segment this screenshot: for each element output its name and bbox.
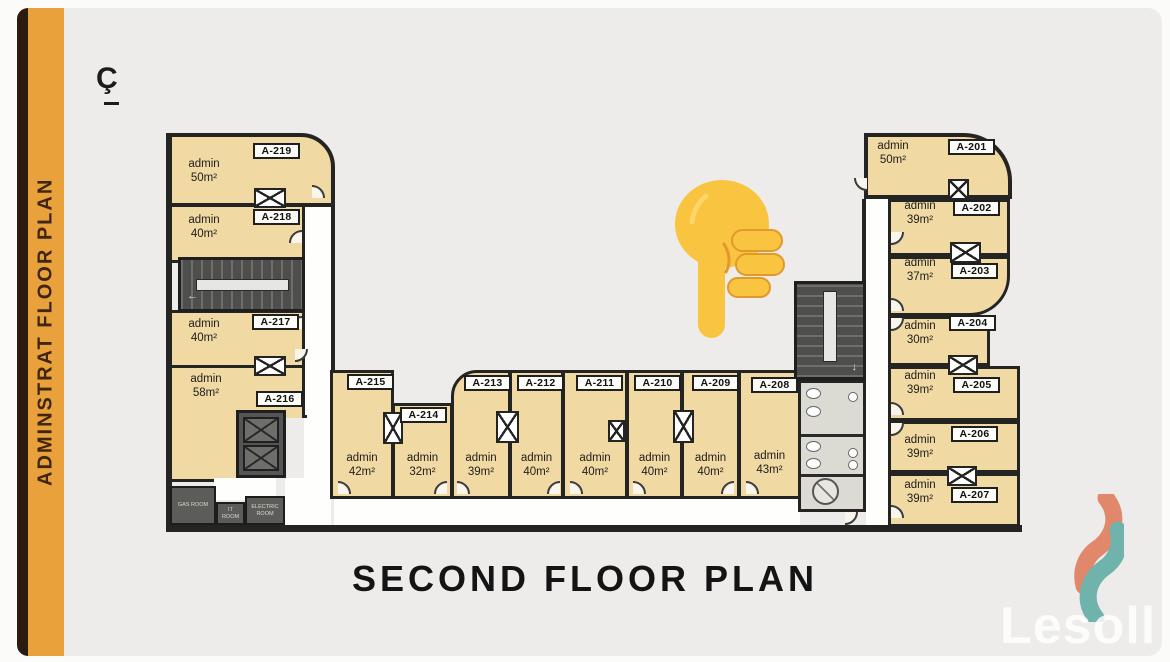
utility-room: IT ROOM [216, 502, 245, 525]
sink-fixture [848, 392, 858, 402]
room-id-label: A-213 [464, 375, 511, 391]
stair-rail [823, 291, 837, 362]
room-id-label: A-215 [347, 374, 394, 390]
room-area-text: admin39m² [893, 200, 947, 228]
elevator-shaft [948, 355, 978, 375]
elevator-shaft [254, 188, 286, 208]
room-A-216-extension [168, 418, 239, 482]
restroom-divider [801, 474, 863, 477]
toilet-fixture [806, 406, 821, 417]
room-id-label: A-207 [951, 487, 998, 503]
north-symbol: Ç [96, 62, 118, 96]
plan-title: SECOND FLOOR PLAN [0, 558, 1170, 600]
elevator-shaft [243, 417, 279, 443]
elevator-shaft [254, 356, 286, 376]
room-id-label: A-204 [949, 315, 996, 331]
room-area-text: admin39m² [893, 479, 947, 507]
room-id-label: A-218 [253, 209, 300, 225]
room-id-label: A-202 [953, 200, 1000, 216]
toilet-fixture [806, 388, 821, 399]
pointing-down-emoji [662, 174, 796, 345]
room-area-text: admin30m² [893, 320, 947, 348]
room-id-label: A-210 [634, 375, 681, 391]
room-id-label: A-205 [953, 377, 1000, 393]
room-area-text: admin40m² [626, 452, 683, 480]
wall [331, 207, 335, 372]
room-area-text: admin50m² [866, 140, 920, 168]
room-area-text: admin37m² [893, 257, 947, 285]
room-area-text: admin39m² [451, 452, 511, 480]
watermark-text: Lesoll [1000, 596, 1156, 656]
utility-room: GAS ROOM [170, 486, 216, 525]
room-id-label: A-211 [576, 375, 623, 391]
room-area-text: admin58m² [178, 373, 234, 401]
elevator-shaft [950, 242, 981, 263]
room-id-label: A-208 [751, 377, 798, 393]
sink-fixture [848, 460, 858, 470]
stair-arrow: ↓ [852, 361, 858, 373]
elevator-shaft [496, 411, 519, 443]
utility-room: ELECTRIC ROOM [245, 496, 285, 525]
north-symbol-dash [104, 102, 119, 105]
floor-plan-page: ADMINSTRAT FLOOR PLAN Ç ← ↓ [0, 0, 1170, 662]
room-area-text: admin40m² [176, 214, 232, 242]
room-id-label: A-206 [951, 426, 998, 442]
service-elevator-block [236, 410, 286, 478]
elevator-shaft [947, 466, 977, 486]
elevator-shaft [243, 445, 279, 471]
room-area-text: admin40m² [562, 452, 628, 480]
room-id-label: A-209 [692, 375, 739, 391]
room-id-label: A-216 [256, 391, 303, 407]
room-id-label: A-212 [517, 375, 564, 391]
corridor-left-lower [285, 478, 331, 525]
stair-rail [196, 279, 290, 291]
room-area-text: admin39m² [893, 434, 947, 462]
corridor-bottom [334, 497, 800, 525]
corridor-right [866, 199, 888, 525]
room-id-label: A-203 [951, 263, 998, 279]
elevator-shaft [608, 420, 625, 442]
elevator-shaft [673, 410, 694, 443]
stair-arrow: ← [187, 290, 198, 302]
room-area-text: admin42m² [330, 452, 394, 480]
room-id-label: A-201 [948, 139, 995, 155]
restroom-divider [801, 434, 863, 437]
toilet-fixture [806, 441, 821, 452]
room-area-text: admin40m² [176, 318, 232, 346]
elevator-shaft [948, 179, 969, 200]
room-area-text: admin39m² [893, 370, 947, 398]
staircase-right: ↓ [794, 281, 866, 380]
room-area-text: admin50m² [176, 158, 232, 186]
room-area-text: admin40m² [509, 452, 564, 480]
room-area-text: admin40m² [681, 452, 740, 480]
wall [862, 199, 866, 283]
washbasin-fixture [812, 478, 839, 505]
room-area-text: admin32m² [392, 452, 453, 480]
room-id-label: A-214 [400, 407, 447, 423]
room-area-text: admin43m² [738, 450, 801, 478]
sink-fixture [848, 448, 858, 458]
staircase-left: ← [178, 257, 305, 312]
room-id-label: A-217 [252, 314, 299, 330]
toilet-fixture [806, 458, 821, 469]
room-id-label: A-219 [253, 143, 300, 159]
